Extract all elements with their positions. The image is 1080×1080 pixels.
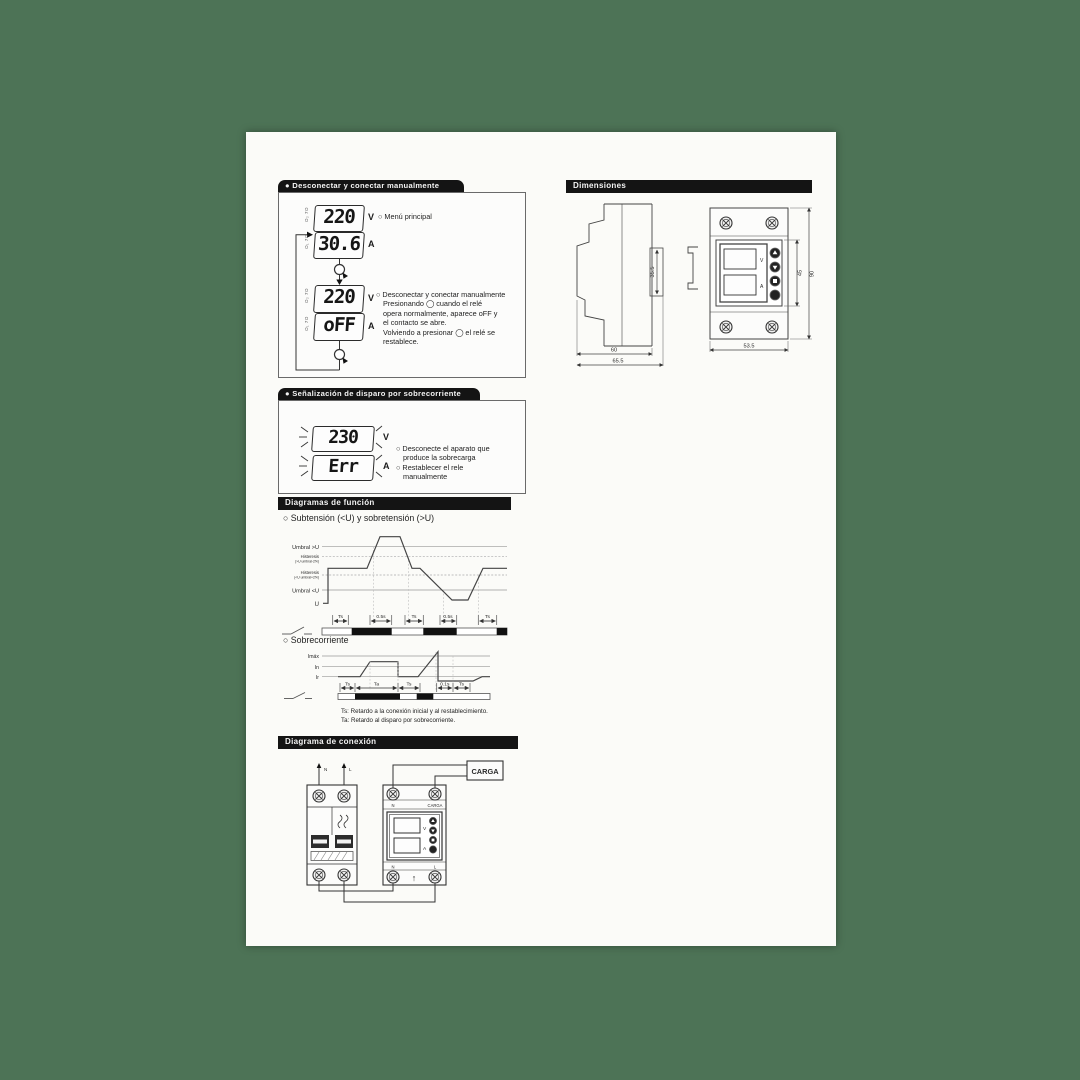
voltage-axis-label: U xyxy=(315,602,319,608)
device-top-neutral-label: N xyxy=(391,803,394,808)
tenth-second-label: 0.1s xyxy=(440,682,450,688)
manual-disconnect-text: ○ Desconectar y conectar manualmente Pre… xyxy=(376,290,505,346)
press-button-icon xyxy=(332,263,349,283)
section-header-manual-disconnect: ● Desconectar y conectar manualmente xyxy=(278,180,464,193)
ts-note: Ts: Retardo a la conexión inicial y al r… xyxy=(341,708,488,717)
amp-unit-label: A xyxy=(383,461,390,471)
volt-unit-label: V xyxy=(368,293,374,303)
relay-contact-icon xyxy=(284,693,312,699)
voltage-lcd xyxy=(724,249,756,269)
current-lcd xyxy=(724,275,756,295)
relay-off-display: oFF xyxy=(313,313,365,341)
ir-label: Ir xyxy=(316,675,319,681)
half-second-label: 0.5s xyxy=(443,614,453,620)
relay-state-bar xyxy=(322,628,507,635)
screw-terminal xyxy=(720,321,732,333)
screw-terminal xyxy=(429,871,441,883)
half-second-label: 0.5s xyxy=(376,614,386,620)
overcurrent-signal-text: ○ Desconecte el aparato que produce la s… xyxy=(396,444,490,482)
hysteresis-label: Histeresis xyxy=(301,570,319,575)
screw-terminal xyxy=(720,217,732,229)
ts-label: Ts xyxy=(407,682,412,688)
panel-height-dim: 45 xyxy=(798,270,804,276)
ta-label: Ta xyxy=(374,682,379,688)
relay-contact-icon xyxy=(282,627,312,634)
display-annunciator: O₁ 7O xyxy=(304,316,309,331)
ts-label: Ts xyxy=(459,682,464,688)
amp-unit-label: A xyxy=(368,239,375,249)
amp-unit-label: A xyxy=(368,321,375,331)
hysteresis-note: (>U umbral-2%) xyxy=(295,560,319,564)
threshold-low-label: Umbral <U xyxy=(292,589,319,595)
section-header-function-diagrams: Diagramas de función xyxy=(278,497,511,510)
volt-unit-label: V xyxy=(383,432,389,442)
timing-notes: Ts: Retardo a la conexión inicial y al r… xyxy=(341,708,488,725)
text-line: Volviendo a presionar ◯ el relé se xyxy=(376,328,505,337)
supply-wires xyxy=(317,763,347,785)
screw-terminal xyxy=(387,788,399,800)
timing-ticks xyxy=(340,683,470,692)
page-background: ● Desconectar y conectar manualmente O₂ … xyxy=(0,0,1080,1080)
display-annunciator: O₂ 7O xyxy=(304,207,309,222)
din-rail-clip xyxy=(688,247,698,289)
imax-label: Imáx xyxy=(308,654,320,660)
connection-diagram: N L xyxy=(300,758,505,915)
total-height-dim: 90 xyxy=(810,271,816,277)
text-line: manualmente xyxy=(396,472,490,481)
front-view: V A xyxy=(710,208,788,339)
screw-terminal xyxy=(387,871,399,883)
in-label: In xyxy=(315,665,319,671)
screw-terminal xyxy=(313,790,325,802)
hysteresis-note: (<U umbral+2%) xyxy=(294,576,319,580)
press-button-icon xyxy=(332,348,349,368)
supply-neutral-label: N xyxy=(324,767,327,772)
circuit-breaker xyxy=(307,785,357,885)
screw-terminal xyxy=(338,869,350,881)
display-annunciator: O₂ 7O xyxy=(304,288,309,303)
section-header-overcurrent-signal: ● Señalización de disparo por sobrecorri… xyxy=(278,388,480,401)
ts-label: Ts xyxy=(412,614,417,620)
screw-terminal xyxy=(338,790,350,802)
volt-unit-label: V xyxy=(368,212,374,222)
overcurrent-signal-panel: 230 V Err A ○ Desconecte el aparato que … xyxy=(278,400,526,494)
text-line: ○ Desconectar y conectar manualmente xyxy=(376,290,505,299)
voltage-display: 220 xyxy=(313,205,365,232)
voltage-display: 230 xyxy=(311,426,375,452)
width-dim: 53.5 xyxy=(744,344,755,350)
screw-terminal xyxy=(766,217,778,229)
voltage-display: 220 xyxy=(313,285,365,313)
voltage-lcd xyxy=(394,818,420,833)
text-line: Presionando ◯ cuando el relé xyxy=(376,299,505,308)
section-header-connection-diagram: Diagrama de conexión xyxy=(278,736,518,749)
overcurrent-subtitle: ○ Sobrecorriente xyxy=(283,635,348,645)
overcurrent-function-diagram: Imáx In Ir Ts Ta Ts 0.1s Ts xyxy=(278,648,510,702)
screw-terminal xyxy=(429,788,441,800)
text-line: ○ Restablecer el rele xyxy=(396,463,490,472)
menu-note: ○ Menú principal xyxy=(378,212,432,221)
manual-disconnect-panel: O₂ 7O 220 V ○ Menú principal O₁ 7O 30.6 … xyxy=(278,192,526,378)
voltage-function-diagram: Umbral >U Histeresis (>U umbral-2%) Hist… xyxy=(278,528,510,638)
ts-label: Ts xyxy=(485,614,490,620)
total-depth-dim: 65.5 xyxy=(613,359,624,365)
text-line: ○ Desconecte el aparato que xyxy=(396,444,490,453)
current-display: 30.6 xyxy=(313,232,365,259)
threshold-high-label: Umbral >U xyxy=(292,545,319,551)
section-header-dimensions: Dimensiones xyxy=(566,180,812,193)
body-depth-dim: 60 xyxy=(611,348,617,354)
screw-terminal xyxy=(766,321,778,333)
display-annunciator: O₁ 7O xyxy=(304,234,309,249)
dimension-drawings: 35.5 60 65.5 V A xyxy=(560,196,820,370)
undervoltage-overvoltage-subtitle: ○ Subtensión (<U) y sobretensión (>U) xyxy=(283,513,434,523)
voltage-protector: V A xyxy=(383,785,446,885)
ta-note: Ta: Retardo al disparo por sobrecorrient… xyxy=(341,717,488,726)
text-line: el contacto se abre. xyxy=(376,318,505,327)
error-display: Err xyxy=(311,455,375,481)
direction-arrow: ↑ xyxy=(412,873,417,883)
ts-label: Ts xyxy=(338,614,343,620)
relay-state-bar xyxy=(338,694,490,700)
ts-label: Ts xyxy=(345,682,350,688)
device-bottom-neutral-label: N xyxy=(391,865,394,870)
supply-line-label: L xyxy=(349,767,352,772)
text-line: restablece. xyxy=(376,337,505,346)
notch-height-dim: 35.5 xyxy=(650,267,656,278)
side-view xyxy=(577,204,698,346)
load-label: CARGA xyxy=(471,767,499,776)
screw-terminal xyxy=(313,869,325,881)
text-line: opera normalmente, aparece oFF y xyxy=(376,309,505,318)
current-lcd xyxy=(394,838,420,853)
hysteresis-label: Histeresis xyxy=(301,554,319,559)
device-top-load-label: CARGA xyxy=(428,803,443,808)
text-line: produce la sobrecarga xyxy=(396,453,490,462)
